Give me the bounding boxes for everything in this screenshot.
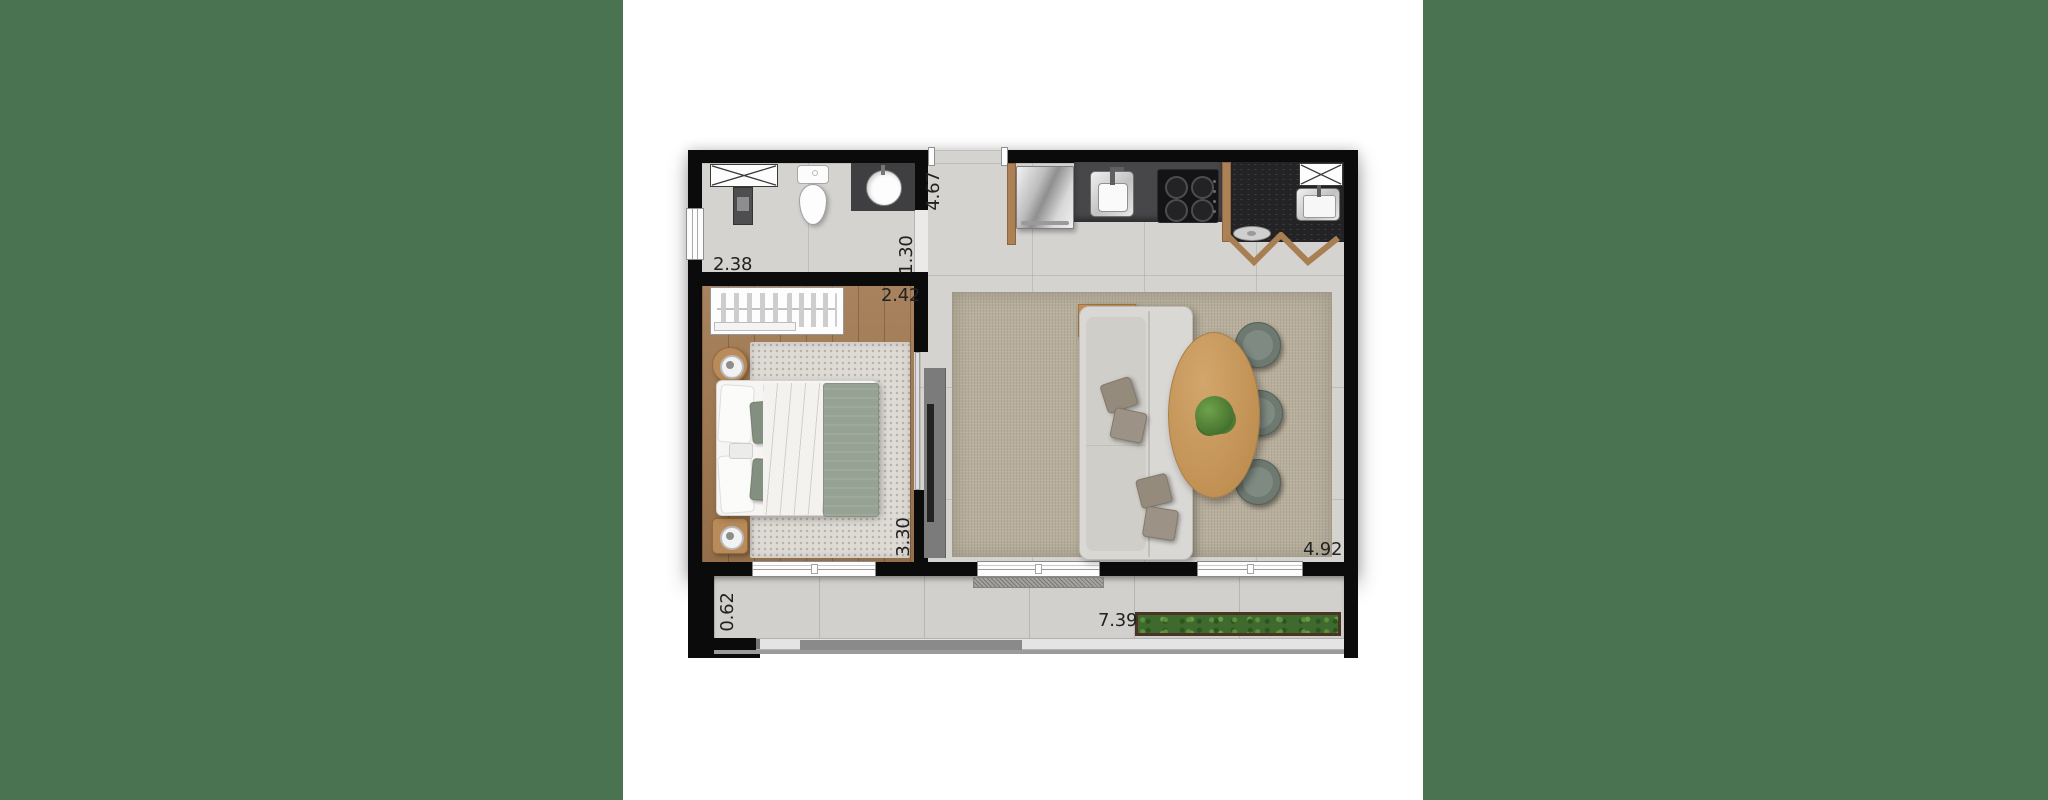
kitchen-sink <box>1090 171 1134 217</box>
bed-duvet <box>763 383 823 515</box>
sink-faucet-icon <box>1110 169 1115 185</box>
closet <box>710 287 844 335</box>
dim-hall-depth: 4.67 <box>923 159 943 223</box>
closet-shelf <box>714 322 796 331</box>
dim-balcony-depth: 0.62 <box>717 580 737 644</box>
tv-icon <box>927 404 934 522</box>
dim-hall-width: 1.30 <box>896 223 916 287</box>
floor-plan-page: 2.38 4.67 1.30 2.42 3.30 4.92 0.62 7.39 <box>0 0 2048 800</box>
shower-column <box>733 187 753 225</box>
dim-bedroom-width: 2.42 <box>881 285 920 306</box>
balcony-handrail <box>800 640 1022 650</box>
table-plant-icon <box>1195 396 1234 435</box>
living-window <box>1197 561 1303 577</box>
dim-bathroom-width: 2.38 <box>713 254 752 275</box>
vanity-counter <box>851 163 915 211</box>
door-granite-sill <box>973 577 1104 588</box>
counter-wood-divider <box>1222 162 1231 242</box>
shaft-box-icon <box>710 164 778 187</box>
bedroom-window <box>752 561 876 577</box>
washbasin <box>866 170 902 206</box>
bed-runner-knot <box>729 443 753 459</box>
fridge <box>1016 166 1074 229</box>
toilet-tank <box>797 165 829 184</box>
folding-door-zigzag-icon <box>1226 232 1340 268</box>
basin-faucet-icon <box>881 165 885 175</box>
entry-opening <box>935 150 1001 163</box>
bathroom-window <box>686 208 704 260</box>
dim-living-width: 4.92 <box>1303 539 1342 560</box>
sofa-pillow <box>1109 407 1148 444</box>
bed-blanket <box>823 383 879 517</box>
planter-box <box>1135 612 1341 636</box>
nightstand <box>712 347 748 383</box>
bedroom-right-wall-upper <box>914 272 928 352</box>
sofa-pillow <box>1142 506 1179 542</box>
bed <box>716 380 878 516</box>
nightstand <box>712 518 748 554</box>
right-wall-lower <box>1344 562 1358 658</box>
balcony-sliding-door <box>977 561 1100 577</box>
balcony-edge-line <box>714 650 1344 654</box>
cabinet-side-panel <box>1007 163 1016 245</box>
laundry-sink <box>1296 188 1340 221</box>
bedroom-sliding-door <box>915 352 920 490</box>
dim-balcony-length: 7.39 <box>1098 610 1137 631</box>
floor-plan: 2.38 4.67 1.30 2.42 3.30 4.92 0.62 7.39 <box>0 0 2048 800</box>
dim-bedroom-length: 3.30 <box>893 505 913 569</box>
service-shaft-box-icon <box>1299 163 1343 186</box>
cooktop <box>1157 169 1219 223</box>
bed-pillow <box>717 454 755 514</box>
